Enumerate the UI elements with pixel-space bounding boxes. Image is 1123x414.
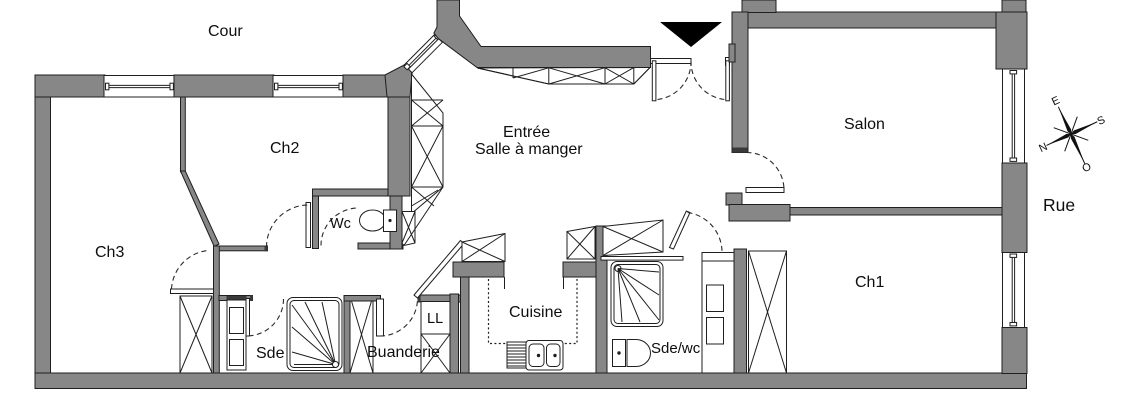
svg-text:Rue: Rue bbox=[1043, 195, 1075, 215]
svg-text:Cuisine: Cuisine bbox=[509, 304, 562, 321]
svg-text:Cour: Cour bbox=[208, 23, 243, 40]
svg-text:Salle à manger: Salle à manger bbox=[475, 141, 583, 158]
svg-text:E: E bbox=[1050, 94, 1062, 108]
svg-text:Buanderie: Buanderie bbox=[367, 344, 440, 361]
svg-text:Salon: Salon bbox=[844, 116, 885, 133]
svg-text:Sde/wc: Sde/wc bbox=[651, 340, 701, 357]
svg-text:N: N bbox=[1037, 141, 1049, 155]
svg-text:Entrée: Entrée bbox=[503, 124, 550, 141]
svg-text:LL: LL bbox=[427, 311, 443, 327]
svg-text:Wc: Wc bbox=[330, 216, 351, 232]
svg-text:Sde: Sde bbox=[256, 345, 285, 362]
svg-text:O: O bbox=[1080, 161, 1093, 176]
svg-text:Ch3: Ch3 bbox=[95, 244, 124, 261]
svg-text:Ch2: Ch2 bbox=[270, 140, 299, 157]
svg-text:S: S bbox=[1095, 114, 1107, 128]
svg-text:Ch1: Ch1 bbox=[855, 274, 884, 291]
